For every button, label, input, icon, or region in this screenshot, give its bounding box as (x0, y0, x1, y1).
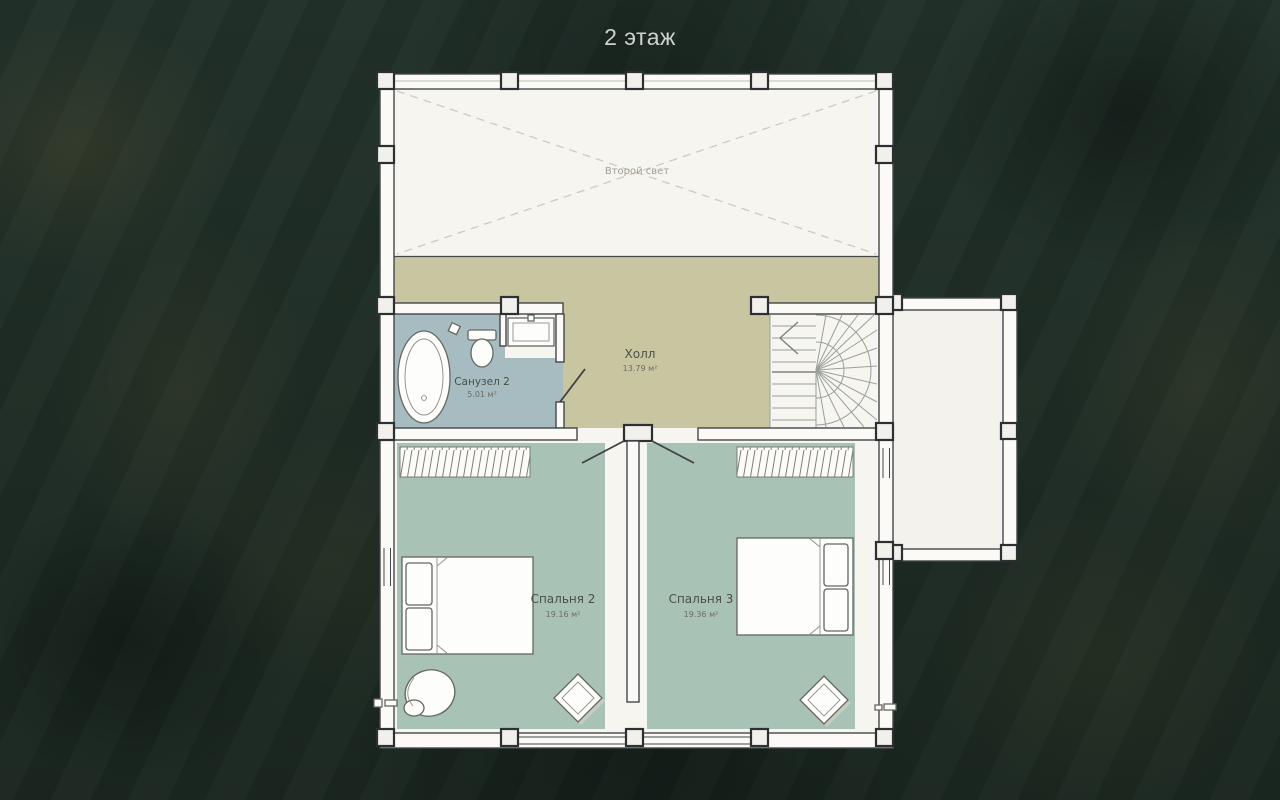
wall (751, 303, 879, 314)
floor-plan: Второй свет Холл 13.79 м² Санузел 2 5.01… (0, 0, 1280, 800)
bedroom3-area: 19.36 м² (684, 610, 719, 619)
radiator (374, 699, 397, 707)
bedroom2-area: 19.16 м² (546, 610, 581, 619)
wall (698, 428, 893, 440)
wardrobe-hatch (400, 447, 530, 477)
second-light-label: Второй свет (605, 166, 669, 177)
pillar (1001, 423, 1017, 439)
bedroom3-label: Спальня 3 (669, 592, 734, 606)
hall-label: Холл (625, 347, 656, 361)
double-bed (737, 538, 853, 635)
bathroom-label: Санузел 2 (454, 376, 510, 388)
balcony (886, 294, 1017, 561)
wall (556, 402, 564, 428)
bedroom2-label: Спальня 2 (531, 592, 596, 606)
bathroom-area: 5.01 м² (467, 390, 497, 399)
radiator (875, 704, 896, 710)
wall (500, 314, 506, 346)
balcony-floor (893, 310, 1003, 549)
bedroom-divider-wall (627, 441, 639, 702)
wall (393, 303, 563, 314)
pillar (1001, 545, 1017, 561)
hall-area: 13.79 м² (623, 364, 658, 373)
window (880, 448, 892, 478)
double-bed (402, 557, 533, 654)
pillar (624, 425, 652, 441)
bathtub (398, 331, 450, 423)
sink (508, 315, 554, 346)
outer-wall-right (879, 74, 893, 748)
wall (556, 314, 564, 362)
wall (380, 428, 577, 440)
wardrobe-hatch (737, 447, 853, 477)
outer-wall-left (380, 74, 394, 748)
pillar (1001, 294, 1017, 310)
window (381, 548, 393, 586)
